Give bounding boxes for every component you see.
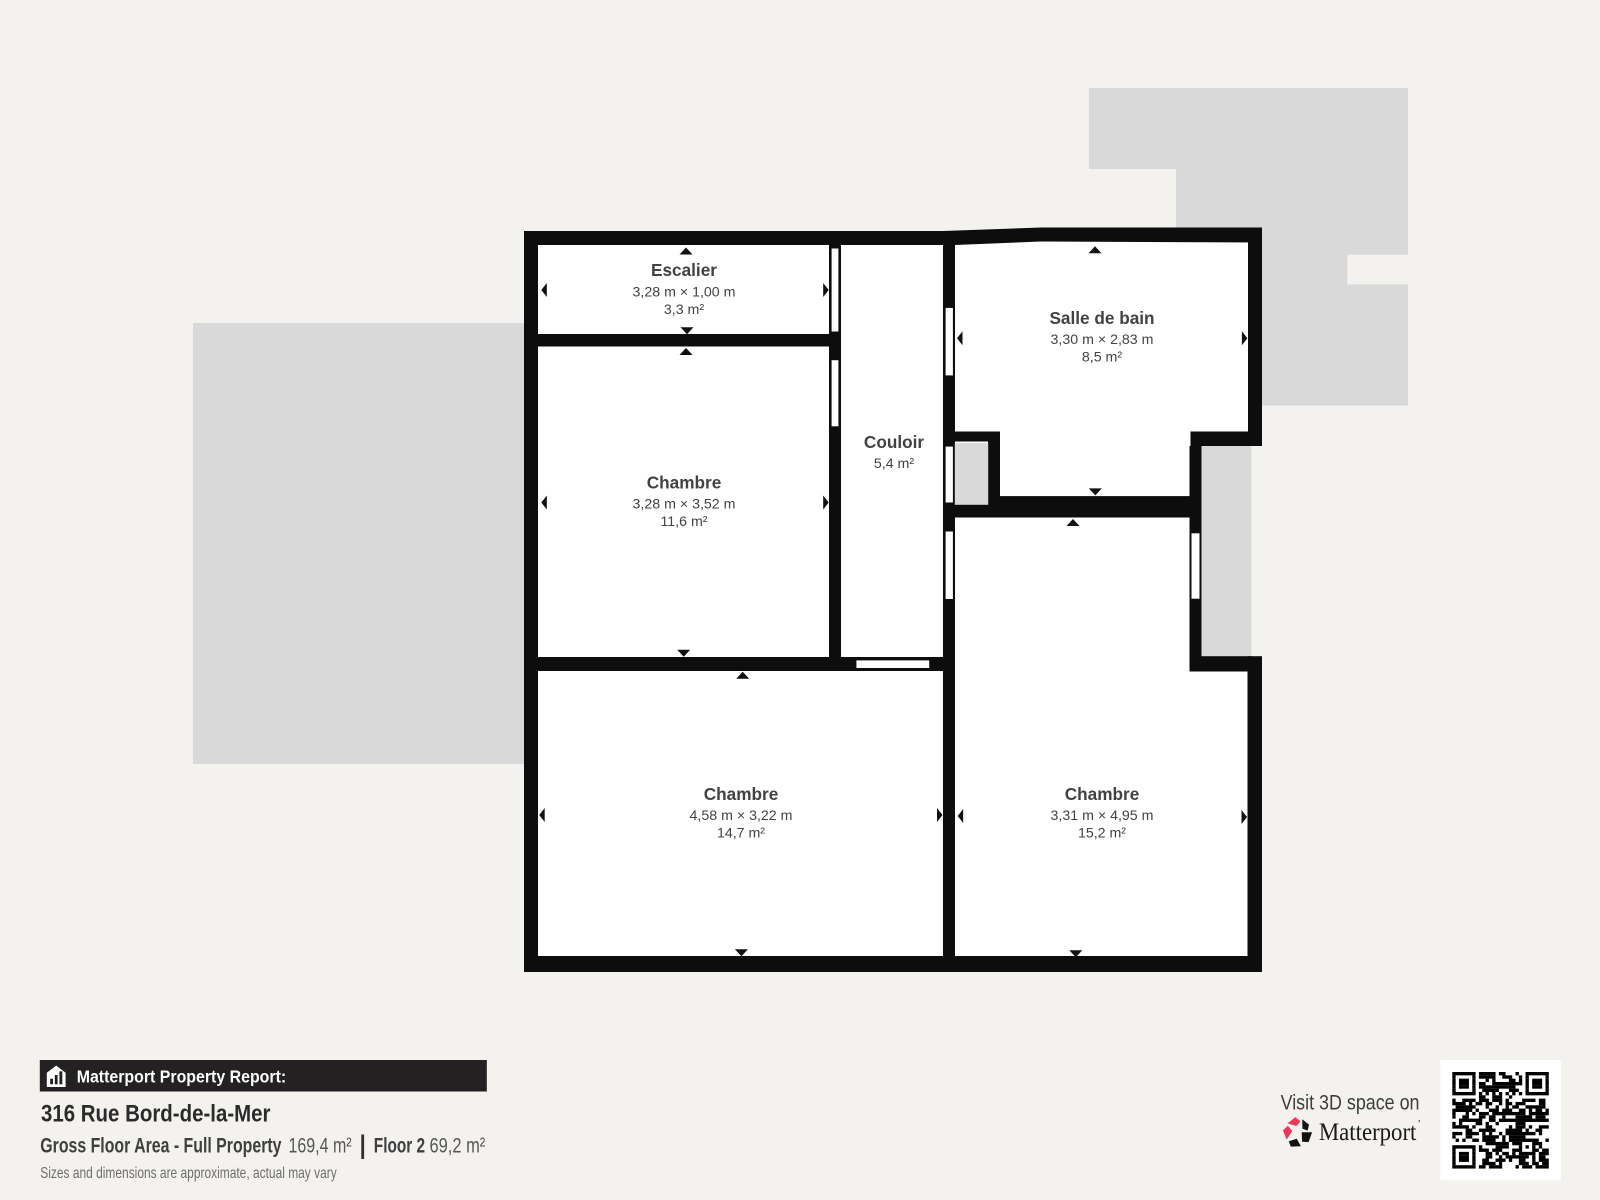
svg-text:5,4 m²: 5,4 m² — [874, 456, 914, 472]
svg-text:69,2 m²: 69,2 m² — [430, 1134, 486, 1157]
svg-text:3,3 m²: 3,3 m² — [664, 302, 704, 318]
svg-text:Escalier: Escalier — [651, 260, 717, 280]
svg-text:15,2 m²: 15,2 m² — [1078, 825, 1126, 841]
svg-text:Chambre: Chambre — [1065, 784, 1140, 804]
svg-text:169,4 m²: 169,4 m² — [289, 1134, 352, 1157]
svg-text:Couloir: Couloir — [864, 432, 924, 452]
svg-text:3,31 m × 4,95 m: 3,31 m × 4,95 m — [1051, 808, 1154, 824]
svg-text:Chambre: Chambre — [704, 784, 779, 804]
svg-text:3,28 m × 1,00 m: 3,28 m × 1,00 m — [633, 284, 736, 300]
svg-text:316 Rue Bord-de-la-Mer: 316 Rue Bord-de-la-Mer — [41, 1101, 271, 1128]
svg-text:Matterport: Matterport — [1319, 1119, 1417, 1146]
svg-text:’: ’ — [1418, 1119, 1421, 1130]
svg-text:11,6 m²: 11,6 m² — [660, 514, 707, 530]
svg-text:8,5 m²: 8,5 m² — [1082, 349, 1122, 365]
svg-text:Chambre: Chambre — [647, 472, 722, 492]
svg-text:Visit 3D space on: Visit 3D space on — [1281, 1090, 1420, 1114]
svg-text:Salle de bain: Salle de bain — [1049, 308, 1154, 328]
svg-text:4,58 m × 3,22 m: 4,58 m × 3,22 m — [690, 808, 793, 824]
svg-text:Sizes and dimensions are appro: Sizes and dimensions are approximate, ac… — [40, 1165, 336, 1182]
svg-text:3,30 m × 2,83 m: 3,30 m × 2,83 m — [1051, 332, 1154, 348]
svg-text:Floor 2: Floor 2 — [374, 1134, 425, 1157]
svg-text:14,7 m²: 14,7 m² — [717, 825, 765, 841]
svg-text:Matterport Property Report:: Matterport Property Report: — [77, 1067, 287, 1087]
svg-text:Gross Floor Area - Full Proper: Gross Floor Area - Full Property — [40, 1134, 281, 1157]
svg-text:3,28 m × 3,52 m: 3,28 m × 3,52 m — [633, 496, 736, 512]
